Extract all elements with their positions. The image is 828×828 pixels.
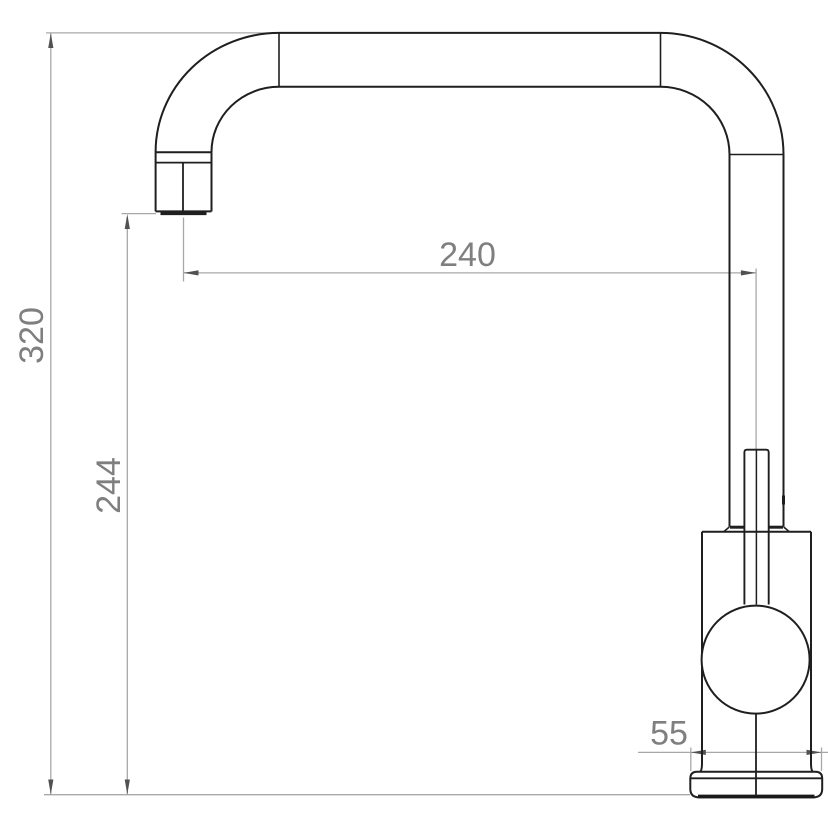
svg-text:55: 55 <box>650 715 688 753</box>
svg-text:240: 240 <box>439 236 496 274</box>
svg-text:320: 320 <box>13 307 51 364</box>
svg-text:244: 244 <box>90 457 128 514</box>
